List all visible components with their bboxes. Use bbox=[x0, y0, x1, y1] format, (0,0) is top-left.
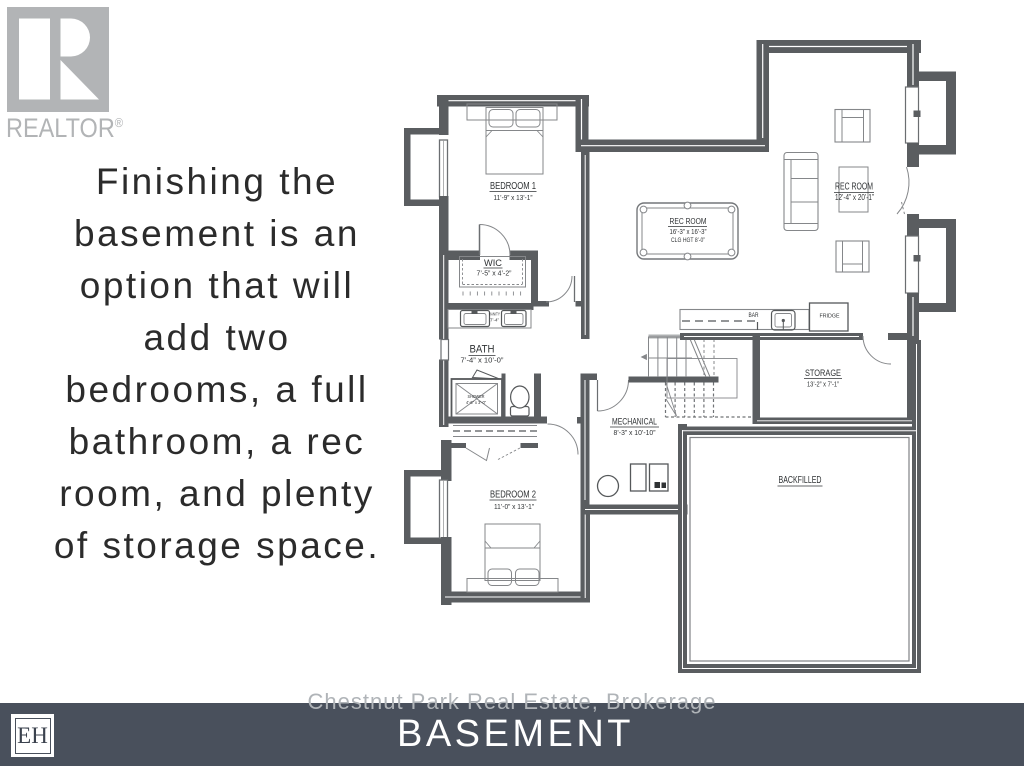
svg-text:CLG HGT 8’-0”: CLG HGT 8’-0” bbox=[671, 237, 705, 244]
svg-text:12’-4” x 20’-1”: 12’-4” x 20’-1” bbox=[835, 193, 874, 202]
svg-text:REC ROOM: REC ROOM bbox=[835, 182, 873, 193]
svg-text:8’-3” x 10’-10”: 8’-3” x 10’-10” bbox=[614, 428, 656, 437]
svg-text:BATH: BATH bbox=[470, 344, 495, 356]
svg-text:BEDROOM 1: BEDROOM 1 bbox=[490, 181, 536, 192]
svg-text:13’-2” x 7’-1”: 13’-2” x 7’-1” bbox=[807, 380, 839, 389]
svg-text:BEDROOM 2: BEDROOM 2 bbox=[490, 490, 536, 501]
svg-text:FRIDGE: FRIDGE bbox=[820, 314, 840, 320]
svg-text:BAR: BAR bbox=[749, 313, 760, 319]
svg-text:11’-9” x 13’-1”: 11’-9” x 13’-1” bbox=[494, 193, 533, 202]
svg-text:WIC: WIC bbox=[484, 258, 503, 268]
svg-text:16’-3” x 16’-3”: 16’-3” x 16’-3” bbox=[670, 229, 708, 236]
svg-text:MECHANICAL: MECHANICAL bbox=[612, 417, 657, 428]
svg-text:STORAGE: STORAGE bbox=[805, 368, 841, 378]
svg-text:11’-0” x 13’-1”: 11’-0” x 13’-1” bbox=[494, 502, 534, 511]
svg-text:BACKFILLED: BACKFILLED bbox=[779, 475, 822, 486]
svg-text:7’-4” x 10’-0”: 7’-4” x 10’-0” bbox=[461, 356, 504, 365]
svg-text:4’-6” x 3’-0”: 4’-6” x 3’-0” bbox=[466, 400, 486, 405]
svg-text:REC ROOM: REC ROOM bbox=[670, 216, 707, 226]
svg-text:VANITY: VANITY bbox=[489, 312, 500, 317]
svg-text:7’-5” x 4’-2”: 7’-5” x 4’-2” bbox=[477, 271, 513, 278]
svg-text:7’-4”: 7’-4” bbox=[490, 318, 499, 323]
